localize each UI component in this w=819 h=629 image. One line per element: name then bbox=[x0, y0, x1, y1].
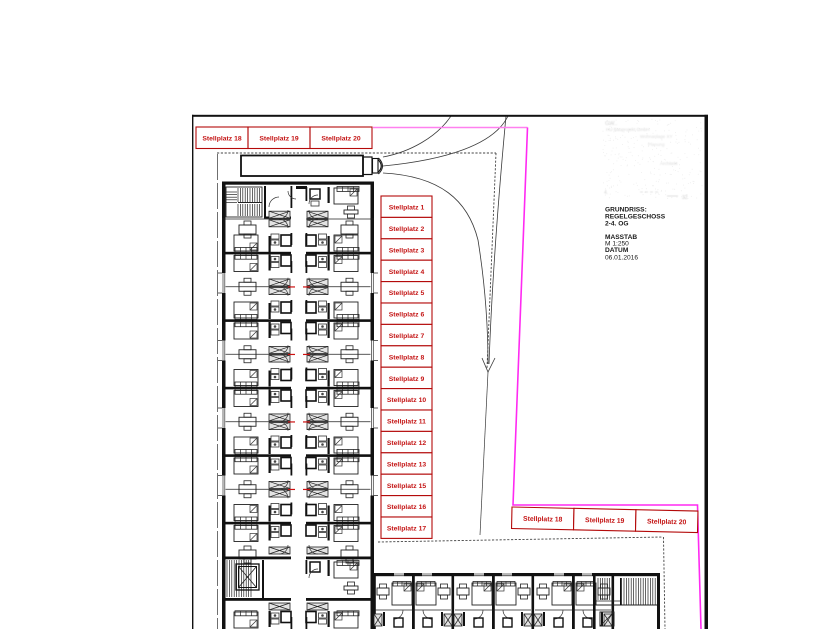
svg-text:06.01.2016: 06.01.2016 bbox=[605, 255, 638, 262]
svg-text:HU Bauprojekt GmbH: HU Bauprojekt GmbH bbox=[606, 127, 650, 132]
svg-text:Stellplatz 12: Stellplatz 12 bbox=[387, 440, 427, 447]
svg-text:GRUNDRISS:: GRUNDRISS: bbox=[605, 207, 647, 214]
svg-text:REGELGESCHOSS: REGELGESCHOSS bbox=[605, 214, 666, 221]
svg-text:Stellplatz 18: Stellplatz 18 bbox=[523, 516, 563, 524]
svg-text:32: 32 bbox=[682, 195, 688, 201]
svg-text:Planung: Planung bbox=[648, 142, 665, 147]
svg-text:Stellplatz 18: Stellplatz 18 bbox=[202, 136, 242, 143]
svg-text:Stellplatz 2: Stellplatz 2 bbox=[389, 226, 425, 233]
svg-text:Architekt: Architekt bbox=[660, 161, 678, 166]
svg-text:Stellplatz 9: Stellplatz 9 bbox=[389, 376, 425, 383]
svg-text:Stellplatz 11: Stellplatz 11 bbox=[387, 419, 426, 426]
svg-text:Stellplatz 10: Stellplatz 10 bbox=[387, 397, 427, 404]
svg-text:Stellplatz 20: Stellplatz 20 bbox=[321, 136, 361, 143]
svg-text:Stellplatz 7: Stellplatz 7 bbox=[389, 333, 425, 340]
svg-text:Wohnanlage XY: Wohnanlage XY bbox=[640, 134, 672, 139]
svg-text:Stellplatz 16: Stellplatz 16 bbox=[387, 504, 427, 511]
svg-text:Stellplatz 6: Stellplatz 6 bbox=[389, 312, 425, 319]
svg-text:DATUM: DATUM bbox=[605, 247, 629, 254]
svg-text:Stellplatz 5: Stellplatz 5 bbox=[389, 290, 425, 297]
svg-text:Stellplatz 8: Stellplatz 8 bbox=[389, 354, 425, 361]
svg-text:Stellplatz 17: Stellplatz 17 bbox=[387, 526, 427, 533]
svg-text:2-4. OG: 2-4. OG bbox=[605, 221, 628, 228]
svg-text:Stellplatz 20: Stellplatz 20 bbox=[647, 518, 687, 526]
svg-text:Stellplatz 15: Stellplatz 15 bbox=[387, 483, 427, 490]
svg-text:Stellplatz 4: Stellplatz 4 bbox=[389, 269, 425, 276]
svg-text:Stellplatz 19: Stellplatz 19 bbox=[259, 136, 299, 143]
svg-text:4.: 4. bbox=[604, 190, 608, 196]
svg-text:Stellplatz 1: Stellplatz 1 bbox=[389, 205, 425, 212]
svg-text:Stellplatz 13: Stellplatz 13 bbox=[387, 461, 427, 468]
svg-text:Stellplatz 19: Stellplatz 19 bbox=[585, 517, 625, 525]
svg-text:Stellplatz 3: Stellplatz 3 bbox=[389, 247, 425, 254]
